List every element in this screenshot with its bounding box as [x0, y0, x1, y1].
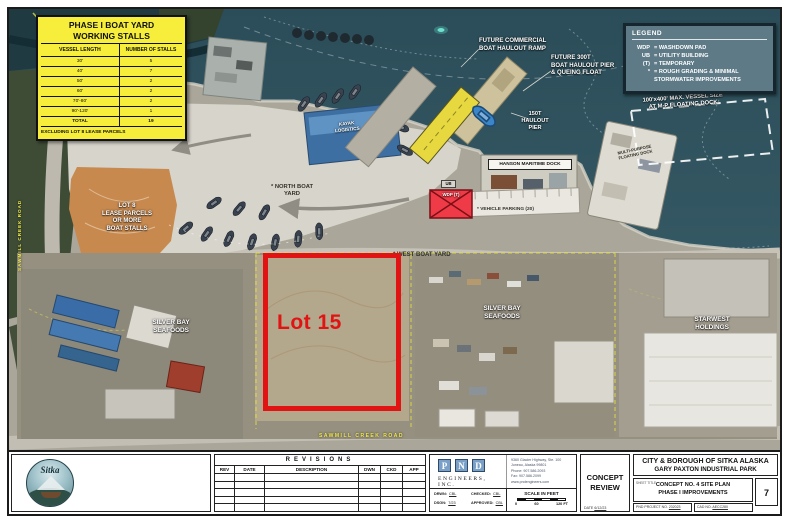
stall-table: PHASE I BOAT YARD WORKING STALLS VESSEL …	[36, 15, 187, 141]
agency-name: CITY & BOROUGH OF SITKA ALASKA	[634, 458, 777, 465]
pnd-letter: D	[472, 459, 485, 472]
pnd-address: 9360 Glacier Highway, Ste. 100 Juneau, A…	[506, 455, 576, 488]
wdp-label: WDP (T)	[433, 192, 469, 198]
legend-item: *= ROUGH GRADING & MINIMAL STORMWATER IM…	[632, 68, 767, 84]
site-map: SAWMILL CREEK SAWMILL CREEK ROAD SAWMILL…	[9, 9, 780, 450]
table-row: 40'7	[41, 67, 182, 77]
revisions-table: REVISIONS REV DATE DESCRIPTION DWN CKD A…	[214, 454, 426, 512]
drawing-sheet: SAWMILL CREEK SAWMILL CREEK ROAD SAWMILL…	[7, 7, 782, 516]
table-row: 30'5	[41, 57, 182, 67]
ub-label: UB	[441, 180, 456, 188]
legend: LEGEND WDP= WASHDOWN PAD UB= UTILITY BUI…	[623, 23, 776, 94]
sheet-title-box: SHEET TITLE CONCEPT NO. 4 SITE PLAN PHAS…	[633, 478, 753, 502]
table-total-row: TOTAL19	[41, 117, 182, 127]
scale-bar: SCALE IN FEET 0 60 120 FT	[506, 489, 576, 511]
revision-row	[215, 504, 425, 511]
logo-text: Sitka	[27, 465, 73, 475]
top-dock	[203, 37, 267, 101]
legend-item: WDP= WASHDOWN PAD	[632, 44, 767, 52]
revision-row	[215, 489, 425, 497]
project-id-block: CITY & BOROUGH OF SITKA ALASKA GARY PAXT…	[633, 454, 778, 512]
north-yard-label: * NORTH BOAT YARD	[261, 184, 323, 198]
starwest-label: STARWEST HOLDINGS	[669, 316, 755, 332]
engineer-block: P N D ENGINEERS, INC. 9360 Glacier Highw…	[429, 454, 577, 512]
hanson-dock-label: HANSON MARITIME DOCK	[488, 159, 572, 170]
revisions-header: REV DATE DESCRIPTION DWN CKD APP	[215, 466, 425, 474]
logo-mountain-icon	[37, 476, 65, 490]
road-bottom-label: SAWMILL CREEK ROAD	[319, 433, 404, 439]
vehicle-parking-label: * VEHICLE PARKING (20)	[477, 207, 581, 213]
starwest-buildings	[644, 259, 777, 427]
logo-box: Sitka	[11, 454, 211, 512]
sbs-center-label: SILVER BAY SEAFOODS	[461, 305, 543, 321]
pnd-letter: P	[438, 459, 451, 472]
lot15-label: Lot 15	[277, 311, 342, 335]
revisions-title: REVISIONS	[215, 455, 425, 466]
title-block: Sitka REVISIONS REV DATE DESCRIPTION DWN…	[9, 450, 780, 514]
sitka-logo: Sitka	[26, 459, 74, 507]
scale-title: SCALE IN FEET	[511, 491, 572, 496]
haulout-150t-label: 150T HAULOUT PIER	[512, 111, 558, 132]
pnd-logo: P N D ENGINEERS, INC.	[430, 455, 506, 488]
pnd-letter: N	[455, 459, 468, 472]
revision-row	[215, 497, 425, 505]
table-row: 60'2	[41, 87, 182, 97]
road-left-label: SAWMILL CREEK ROAD	[17, 159, 23, 271]
west-yard-label: * WEST BOAT YARD	[393, 252, 451, 260]
legend-title: LEGEND	[632, 30, 767, 37]
scale-bar-graphic	[517, 498, 566, 501]
logo-boat-icon	[41, 492, 61, 498]
table-row: 70'-80'2	[41, 97, 182, 107]
legend-item: (T)= TEMPORARY	[632, 60, 767, 68]
project-number: PND PROJECT NO. 232023	[633, 503, 692, 512]
table-row: 50'2	[41, 77, 182, 87]
concept-review-stamp: CONCEPT REVIEW DATE 6/12/23	[580, 454, 630, 512]
park-name: GARY PAXTON INDUSTRIAL PARK	[634, 466, 777, 473]
future-ramp-label: FUTURE COMMERCIAL BOAT HAULOUT RAMP	[479, 38, 589, 53]
stall-table-header: VESSEL LENGTH NUMBER OF STALLS	[41, 44, 182, 57]
cad-number: CAD NO. AECC280	[694, 503, 753, 512]
pnd-name: ENGINEERS, INC.	[438, 476, 506, 488]
sheet-number: 7	[755, 478, 778, 506]
stall-table-footnote: EXCLUDING LOT 8 LEASE PARCELS	[38, 127, 185, 139]
owner-title: CITY & BOROUGH OF SITKA ALASKA GARY PAXT…	[633, 454, 778, 476]
lot8-label: LOT 8 LEASE PARCELS OR MORE BOAT STALLS	[83, 203, 171, 233]
stall-table-title: PHASE I BOAT YARD WORKING STALLS	[38, 17, 185, 43]
revision-row	[215, 482, 425, 490]
drawing-fields: DRWN:CBL CHECKED:CBL DSGN:7/23 APPROVED:…	[430, 489, 506, 511]
table-row: 90'-120'1	[41, 107, 182, 117]
sbs-west-label: SILVER BAY SEAFOODS	[135, 319, 207, 335]
revision-row	[215, 474, 425, 482]
legend-item: UB= UTILITY BUILDING	[632, 52, 767, 60]
